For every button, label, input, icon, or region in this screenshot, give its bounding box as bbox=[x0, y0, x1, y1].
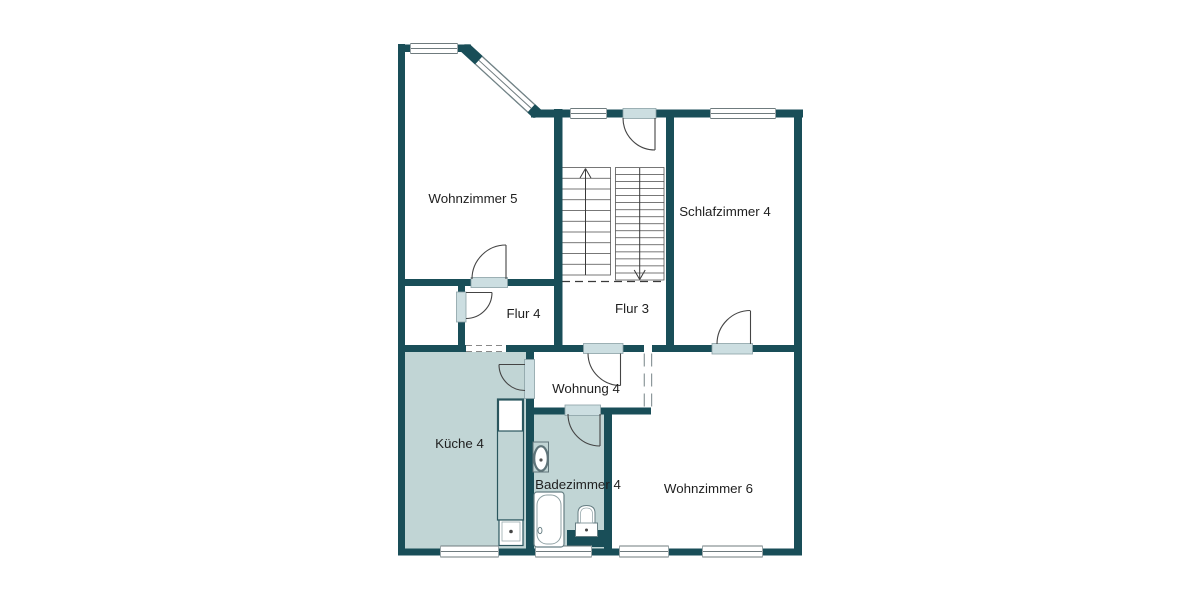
svg-text:Wohnung 4: Wohnung 4 bbox=[552, 381, 620, 396]
svg-text:Flur 3: Flur 3 bbox=[615, 301, 649, 316]
svg-text:Wohnzimmer 6: Wohnzimmer 6 bbox=[664, 481, 753, 496]
svg-text:Schlafzimmer 4: Schlafzimmer 4 bbox=[679, 204, 771, 219]
svg-text:Küche 4: Küche 4 bbox=[435, 436, 484, 451]
svg-text:Wohnzimmer 5: Wohnzimmer 5 bbox=[428, 191, 517, 206]
svg-text:Badezimmer 4: Badezimmer 4 bbox=[535, 477, 621, 492]
svg-text:Flur 4: Flur 4 bbox=[507, 306, 541, 321]
